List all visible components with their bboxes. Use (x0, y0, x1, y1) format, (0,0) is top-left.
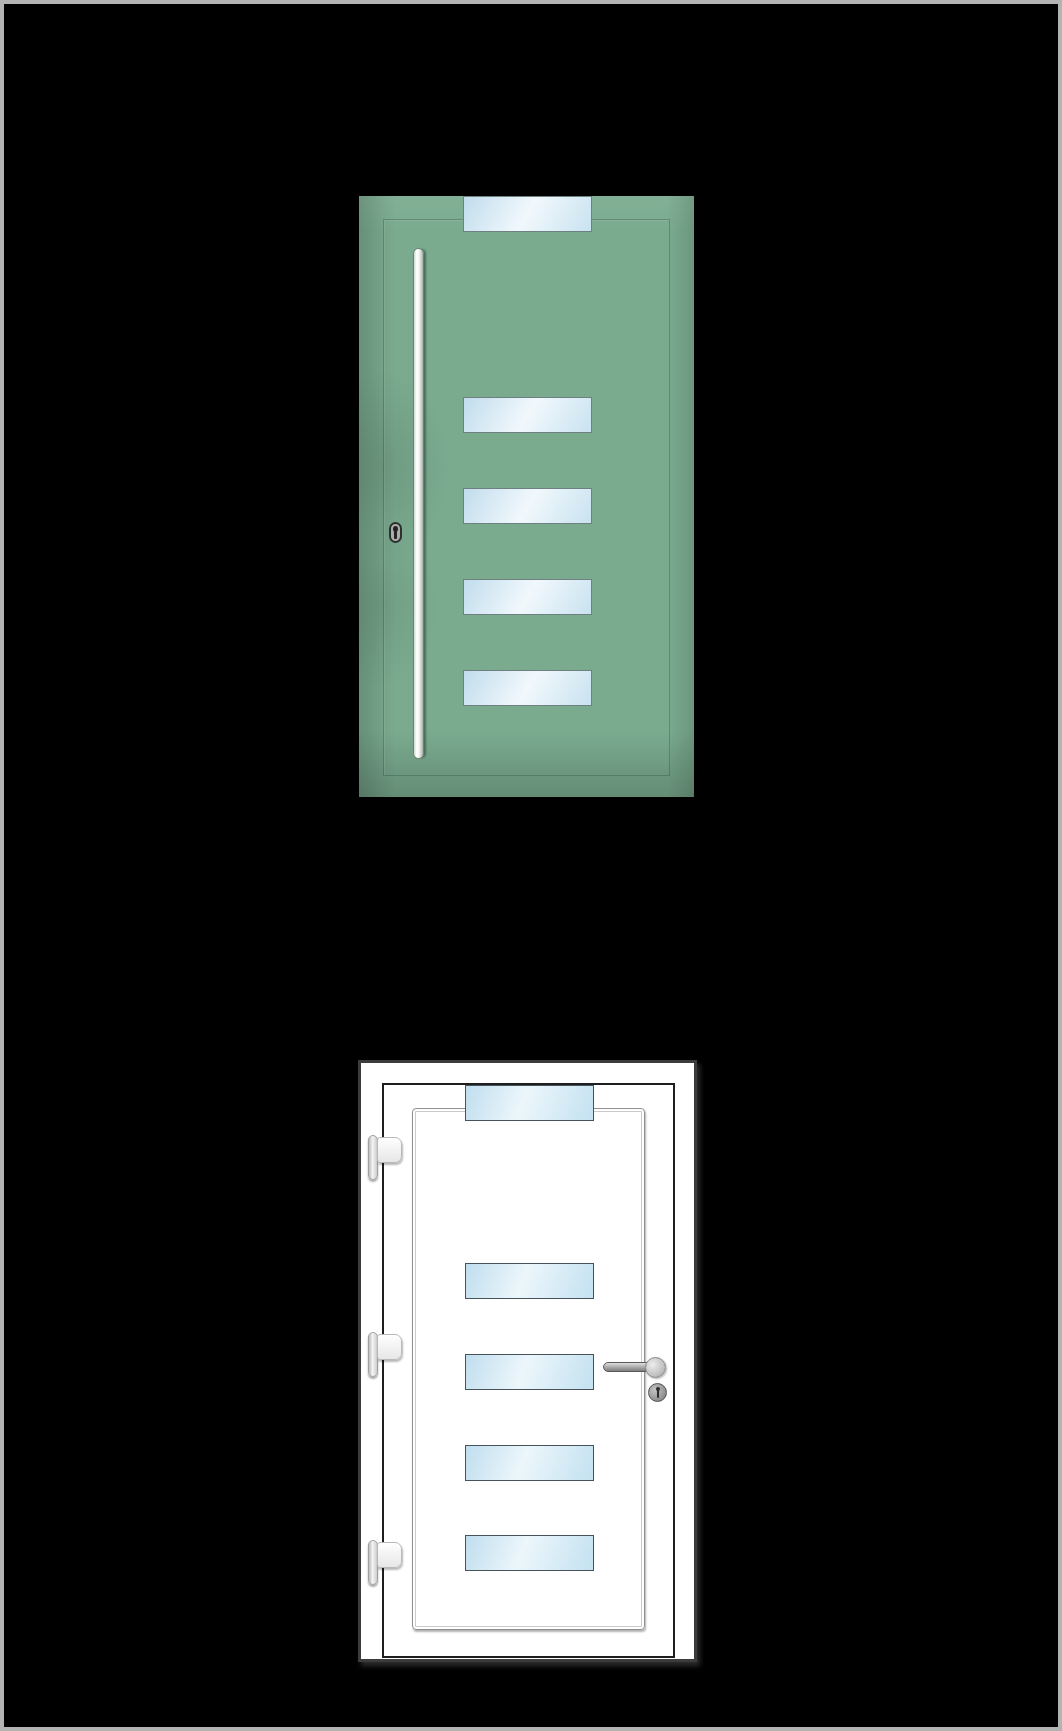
glass-pane-1 (463, 397, 592, 433)
hinge-plate (377, 1137, 402, 1163)
glass-pane-2 (463, 488, 592, 524)
glass-pane-4 (463, 670, 592, 706)
glass-pane-5 (463, 196, 592, 232)
pull-handle-bar (413, 248, 424, 759)
lever-handle (603, 1362, 651, 1372)
hinge-top (368, 1135, 402, 1180)
glass-pane-1 (465, 1263, 594, 1299)
hinge-plate (377, 1334, 402, 1360)
lock-cylinder-keyhole-icon (389, 522, 402, 543)
lock-cylinder-icon (648, 1383, 667, 1402)
image-canvas (0, 0, 1062, 1731)
glass-pane-3 (463, 579, 592, 615)
hinge-bottom (368, 1540, 402, 1585)
hinge-middle (368, 1332, 402, 1377)
glass-pane-4 (465, 1535, 594, 1571)
glass-pane-5 (465, 1085, 594, 1121)
handle-rosette (645, 1357, 666, 1378)
white-entry-door[interactable] (358, 1060, 697, 1662)
hinge-plate (377, 1542, 402, 1568)
glass-pane-2 (465, 1354, 594, 1390)
green-entry-door[interactable] (359, 196, 694, 797)
glass-pane-3 (465, 1445, 594, 1481)
